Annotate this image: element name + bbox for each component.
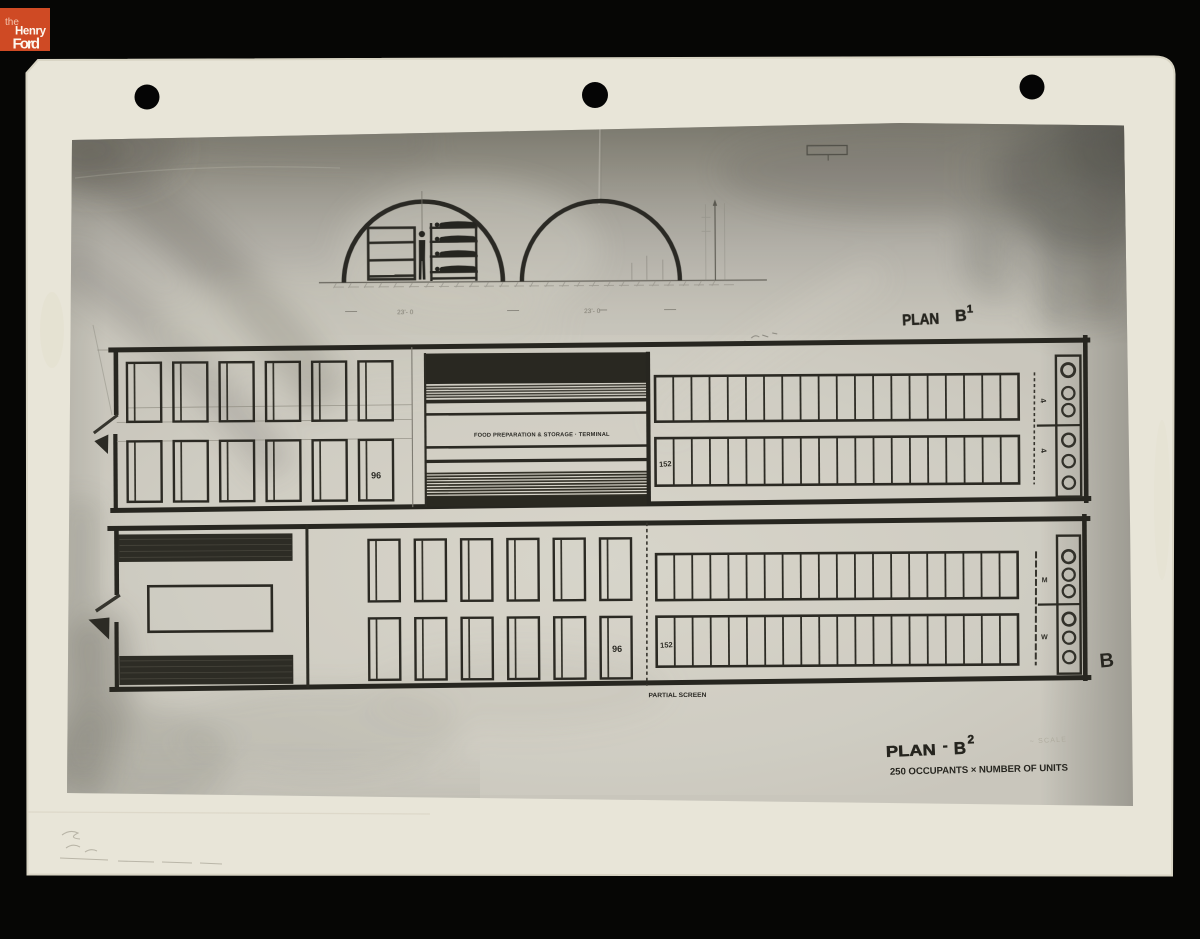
svg-text:Ford: Ford [13, 36, 41, 53]
